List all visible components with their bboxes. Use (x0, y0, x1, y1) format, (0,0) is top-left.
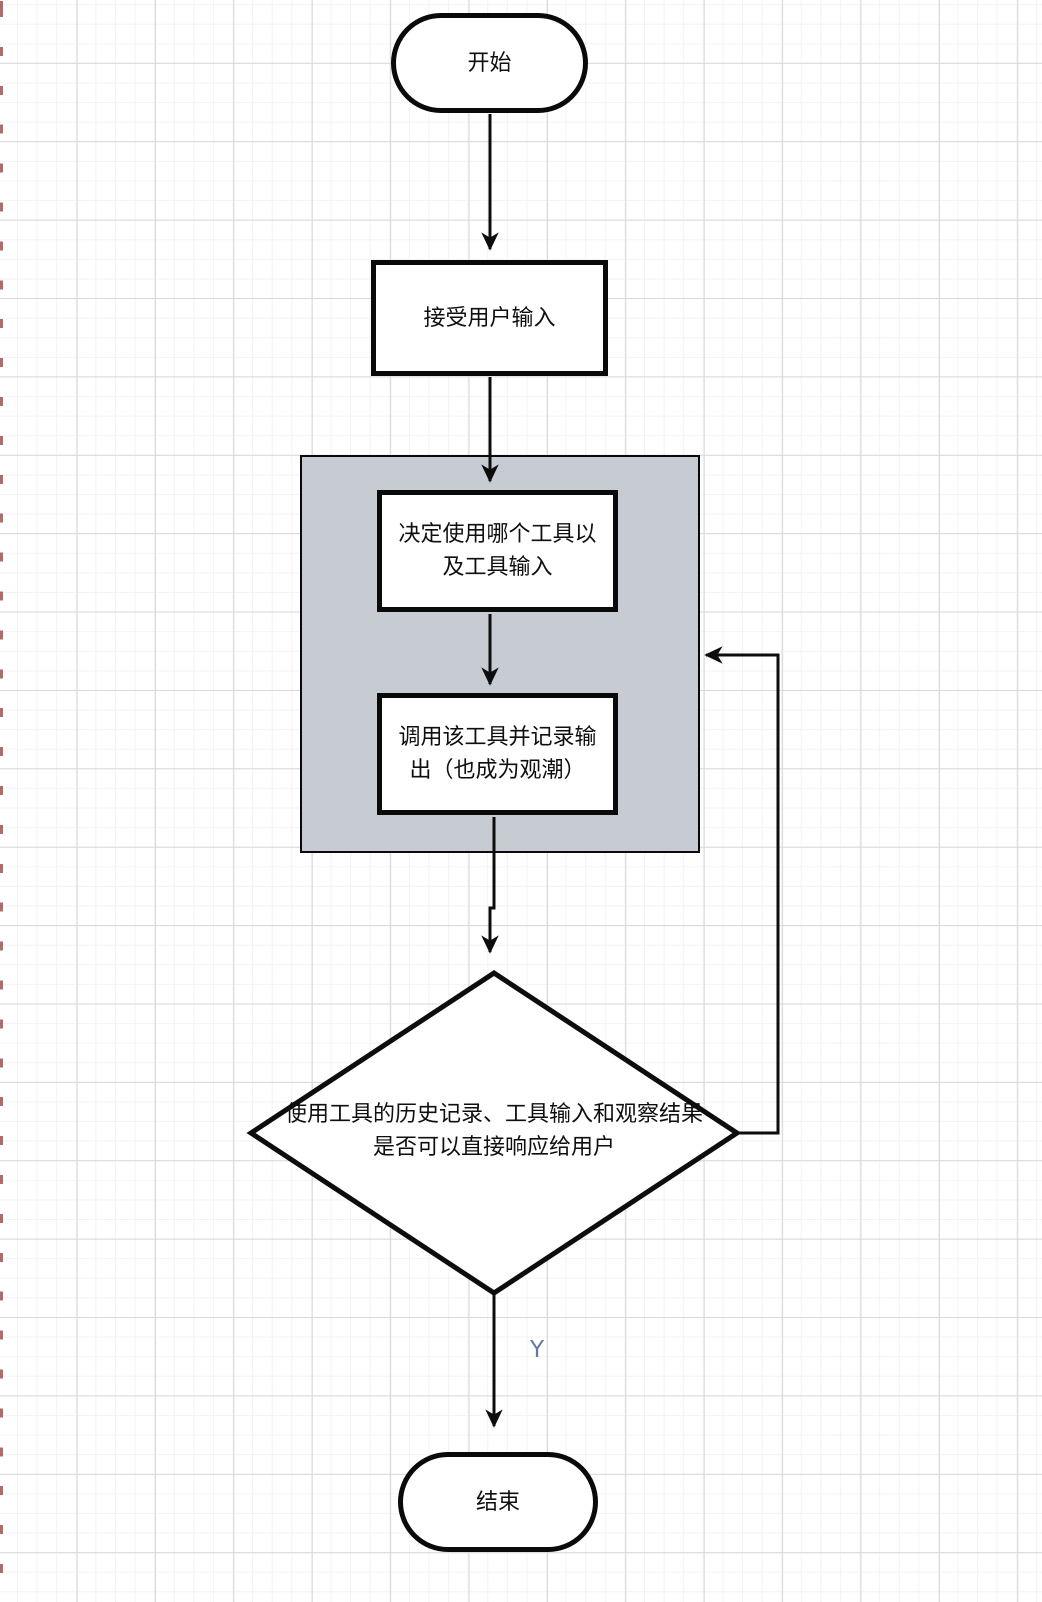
decide-tool-node[interactable]: 决定使用哪个工具以 及工具输入 (377, 490, 618, 612)
end-label: 结束 (476, 1486, 520, 1519)
accept-input-label: 接受用户输入 (423, 302, 555, 335)
edge-decision-loop-back[interactable] (706, 655, 778, 1133)
decide-tool-label: 决定使用哪个工具以 及工具输入 (398, 518, 596, 584)
end-node[interactable]: 结束 (398, 1452, 598, 1552)
accept-input-node[interactable]: 接受用户输入 (371, 260, 608, 376)
decision-label: 使用工具的历史记录、工具输入和观察结果 是否可以直接响应给用户 (244, 1095, 744, 1167)
edge-call-to-decision[interactable] (490, 817, 494, 952)
call-tool-label: 调用该工具并记录输 出（也成为观潮） (398, 721, 596, 787)
start-label: 开始 (467, 47, 511, 80)
start-node[interactable]: 开始 (391, 13, 588, 113)
call-tool-node[interactable]: 调用该工具并记录输 出（也成为观潮） (377, 693, 618, 815)
yes-edge-label: Y (520, 1333, 554, 1367)
